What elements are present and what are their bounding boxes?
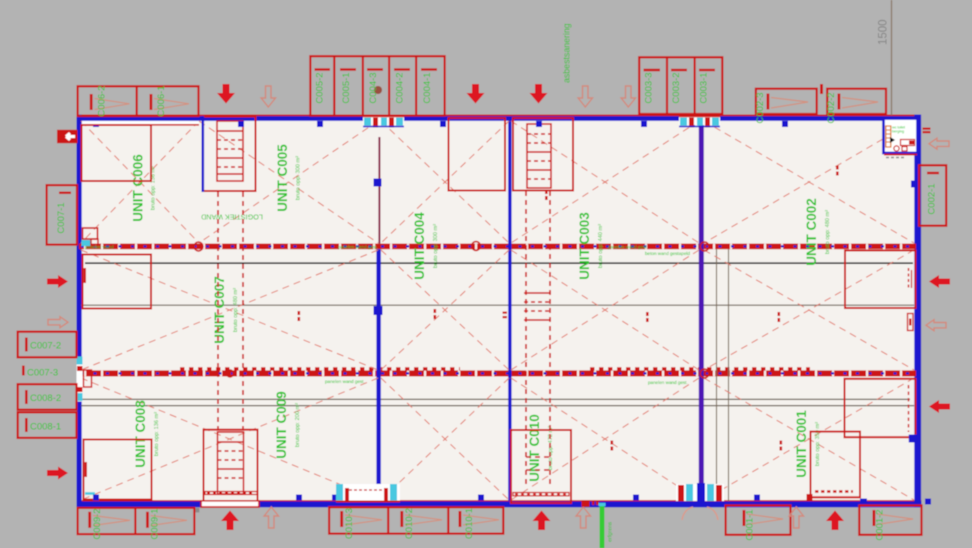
svg-text:berging: berging — [892, 130, 904, 134]
svg-text:C007-3: C007-3 — [27, 368, 58, 379]
svg-text:UNIT C006: UNIT C006 — [131, 154, 146, 222]
svg-text:C008-2: C008-2 — [30, 393, 61, 404]
svg-text:1500: 1500 — [878, 19, 890, 45]
svg-text:C001-2: C001-2 — [875, 509, 886, 540]
svg-text:bruto opp: 200 m²: bruto opp: 200 m² — [295, 403, 301, 447]
svg-text:UNIT C001: UNIT C001 — [794, 410, 809, 478]
svg-text:C006-1: C006-1 — [156, 85, 167, 116]
svg-text:C003-3: C003-3 — [644, 72, 655, 103]
svg-text:C004-2: C004-2 — [395, 72, 406, 103]
svg-text:C001-1: C001-1 — [745, 509, 756, 540]
svg-text:panelen wand gest.: panelen wand gest. — [338, 244, 378, 249]
svg-text:panelen wand: panelen wand — [85, 244, 114, 249]
svg-text:C002-1: C002-1 — [927, 183, 938, 214]
svg-text:C010-2: C010-2 — [404, 508, 415, 539]
svg-text:bruto opp: 300 m²: bruto opp: 300 m² — [433, 224, 439, 268]
svg-text:panelen wand gest.: panelen wand gest. — [608, 244, 648, 249]
svg-text:C002-2: C002-2 — [826, 92, 837, 123]
svg-text:bruto opp: 350 m²: bruto opp: 350 m² — [815, 422, 821, 466]
svg-text:C004-3: C004-3 — [368, 72, 379, 103]
svg-text:bruto opp: 136 m²: bruto opp: 136 m² — [154, 412, 160, 456]
svg-text:C005-1: C005-1 — [341, 72, 352, 103]
svg-text:bruto opp: 440 m²: bruto opp: 440 m² — [598, 224, 604, 268]
svg-text:C003-1: C003-1 — [699, 72, 710, 103]
svg-text:C002-3: C002-3 — [755, 92, 766, 123]
svg-text:UNIT C004: UNIT C004 — [412, 212, 427, 280]
svg-text:bruto opp: 472 m²: bruto opp: 472 m² — [548, 426, 554, 470]
svg-text:C009-1: C009-1 — [150, 508, 161, 539]
svg-text:C006-2: C006-2 — [97, 85, 108, 116]
svg-text:asbestsanering: asbestsanering — [562, 23, 572, 83]
svg-text:bruto opp: 480 m²: bruto opp: 480 m² — [233, 288, 239, 332]
svg-text:C007-2: C007-2 — [30, 341, 61, 352]
svg-text:C010-1: C010-1 — [464, 508, 475, 539]
svg-text:C009-2: C009-2 — [92, 508, 103, 539]
svg-text:erfgrens: erfgrens — [608, 522, 614, 542]
svg-text:C010-3: C010-3 — [344, 508, 355, 539]
svg-text:UNIT C002: UNIT C002 — [804, 198, 819, 266]
svg-text:UNIT C008: UNIT C008 — [133, 400, 148, 468]
svg-text:bruto opp: 480 m²: bruto opp: 480 m² — [825, 210, 831, 254]
svg-text:panelen wand gest.: panelen wand gest. — [648, 380, 688, 385]
svg-text:LOGISTIEK WAND: LOGISTIEK WAND — [201, 213, 263, 222]
svg-text:C005-2: C005-2 — [315, 72, 326, 103]
svg-text:C008-1: C008-1 — [30, 422, 61, 433]
svg-text:UNIT C009: UNIT C009 — [274, 391, 289, 459]
svg-text:UNIT C005: UNIT C005 — [275, 144, 290, 212]
svg-text:bruto opp: 300 m²: bruto opp: 300 m² — [296, 156, 302, 200]
svg-text:beton wand gestapeld: beton wand gestapeld — [645, 251, 690, 256]
svg-text:UNIT C010: UNIT C010 — [527, 414, 542, 482]
svg-text:C004-1: C004-1 — [422, 72, 433, 103]
svg-text:C007-1: C007-1 — [56, 202, 67, 233]
svg-text:panelen wand gest.: panelen wand gest. — [325, 379, 365, 384]
svg-text:UNIT C003: UNIT C003 — [577, 212, 592, 280]
svg-text:C003-2: C003-2 — [671, 72, 682, 103]
svg-text:UNIT C007: UNIT C007 — [212, 276, 227, 344]
